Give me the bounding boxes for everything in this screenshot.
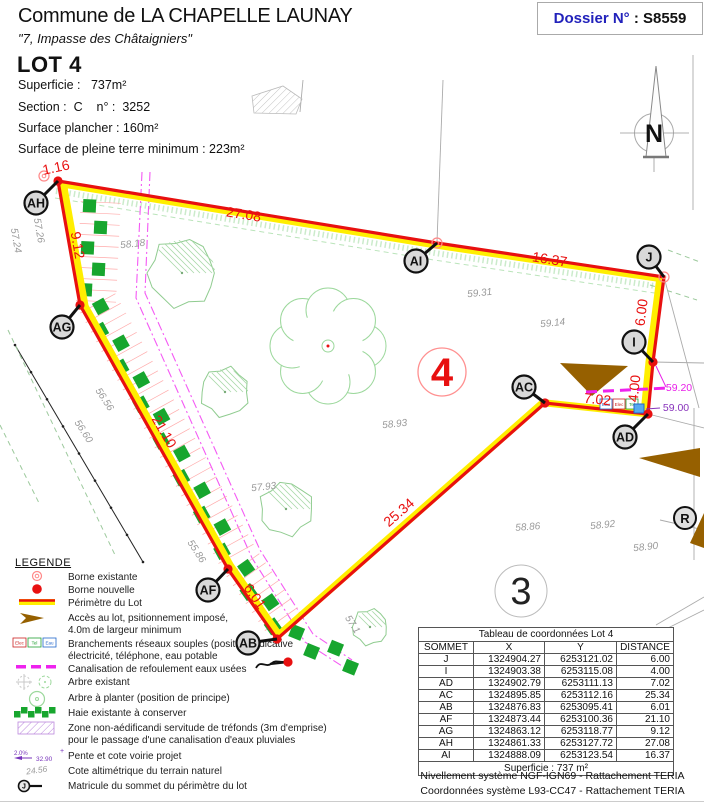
borne-nouvelle (75, 300, 84, 309)
table-row: AF1324873.446253100.3621.10 (419, 714, 674, 726)
hedge-square (81, 241, 95, 255)
hatched-parcel (252, 86, 302, 114)
table-cell: 21.10 (617, 714, 674, 726)
table-cell: AI (419, 750, 474, 762)
legend-title: LEGENDE (15, 557, 71, 569)
table-cell: 6253111.13 (545, 678, 617, 690)
borne-nouvelle (223, 564, 232, 573)
borne-existante (659, 272, 669, 282)
green-dashed-lines (0, 250, 700, 555)
elevation-label: 58.92 (590, 519, 616, 533)
table-row: AC1324895.856253112.1625.34 (419, 690, 674, 702)
tree-outline (201, 366, 247, 417)
table-cell: 6253123.54 (545, 750, 617, 762)
table-cell: 1324876.83 (474, 702, 545, 714)
legend-item-text: Cote altimétrique du terrain naturel (68, 766, 222, 778)
borne-existante (39, 171, 49, 181)
legend-item-text: Canalisation de refoulement eaux usées (68, 664, 246, 676)
svg-text:AC: AC (515, 380, 533, 394)
elevation-label: 57.1 (342, 613, 362, 635)
hedge-square (92, 298, 110, 316)
elevation-label: 58.86 (515, 521, 541, 534)
svg-text:32.90: 32.90 (36, 756, 53, 763)
vertex-label-AI (405, 250, 428, 273)
vertex-label-I (623, 331, 646, 354)
lot-number: 4 (431, 351, 454, 395)
svg-text:Tel: Tel (629, 402, 635, 407)
background-parcel-lines (252, 55, 704, 628)
utility-connections: EauElecTel (600, 399, 644, 413)
north-arrow: N (620, 66, 689, 172)
lot-info-line: Surface plancher : 160m² (18, 121, 158, 135)
hedge-square (92, 263, 106, 277)
acces-icon (12, 610, 62, 628)
existing-hedge-band (55, 191, 662, 294)
table-cell: AG (419, 726, 474, 738)
lot-perimeter (58, 181, 664, 639)
table-header: X (474, 642, 545, 654)
elevation-label: 57.26 (31, 217, 46, 244)
elevation-label: 56.60 (72, 418, 95, 445)
table-cell: 16.37 (617, 750, 674, 762)
lot-info-line: Section : C n° : 3252 (18, 100, 150, 114)
svg-text:I: I (632, 335, 635, 349)
svg-text:Eau: Eau (602, 402, 611, 407)
perimeter-yellow-band (63, 184, 659, 635)
borne-nouvelle (540, 398, 549, 407)
hedge-square (92, 322, 110, 340)
table-cell: AC (419, 690, 474, 702)
hedge-square (193, 481, 211, 499)
lot-info-line: Superficie : 737m² (18, 78, 126, 92)
tree-outline (260, 482, 311, 536)
legend-item-text: Accès au lot, psitionnement imposé,4.0m … (68, 613, 228, 636)
table-cell: 1324861.33 (474, 738, 545, 750)
table-cell: 9.12 (617, 726, 674, 738)
north-arrow-needle (646, 66, 666, 157)
hedge-square (327, 640, 344, 657)
svg-text:+: + (60, 748, 64, 755)
table-cell: 1324902.79 (474, 678, 545, 690)
table-cell: 25.34 (617, 690, 674, 702)
hedge-square (261, 593, 279, 611)
vertex-label-AG (51, 316, 74, 339)
table-row: AG1324863.126253118.779.12 (419, 726, 674, 738)
svg-text:24.56: 24.56 (24, 764, 48, 777)
hedge-square (132, 371, 150, 389)
sewage-pipe: 59.2059.00 (586, 366, 692, 414)
elevation-label: 58.90 (633, 541, 659, 555)
sketch-mark (256, 661, 288, 668)
hedge-square (303, 643, 320, 660)
elevation-label: 59.31 (467, 287, 493, 301)
table-cell: 6253100.36 (545, 714, 617, 726)
dossier-number: : S8559 (630, 10, 687, 27)
table-cell: 6253118.77 (545, 726, 617, 738)
table-cell: 1324904.27 (474, 654, 545, 666)
hedge-square (173, 445, 191, 463)
hedge-square (193, 506, 211, 524)
hedge-square (153, 408, 171, 426)
table-cell: 1324888.09 (474, 750, 545, 762)
distance-labels: 1.1627.0816.376.004.007.0225.346.0121.10… (41, 156, 651, 612)
svg-text:J: J (646, 250, 653, 264)
legend-item-text: Arbre à planter (position de principe) (68, 693, 230, 705)
table-row: J1324904.276253121.026.00 (419, 654, 674, 666)
page-title: Commune de LA CHAPELLE LAUNAY (18, 5, 352, 28)
legend-item-text: Haie existante à conserver (68, 708, 186, 720)
tree-outline (352, 609, 386, 646)
table-row: AH1324861.336253127.7227.08 (419, 738, 674, 750)
table-cell: 1324863.12 (474, 726, 545, 738)
elevation-label: 59.14 (540, 317, 566, 331)
hedge-square (79, 283, 93, 297)
distance-label: 21.10 (149, 412, 180, 451)
svg-text:Eau: Eau (45, 641, 54, 646)
perimeter-red-line (58, 181, 664, 639)
svg-text:Tel: Tel (32, 641, 38, 646)
table-header: SOMMET (419, 642, 474, 654)
page-bottom-rule (0, 801, 704, 802)
dossier-box: Dossier N° : S8559 (537, 2, 703, 35)
hedge-square (342, 659, 359, 676)
utility-box-elec (613, 399, 625, 409)
hedge-square (237, 559, 255, 577)
distance-label: 1.16 (41, 156, 71, 177)
vertex-label-AC (513, 376, 536, 399)
table-cell: 7.02 (617, 678, 674, 690)
elevation-label: 55.86 (185, 538, 208, 565)
table-cell: 6253121.02 (545, 654, 617, 666)
tree-to-plant (270, 288, 386, 404)
svg-text:J: J (22, 784, 26, 791)
distance-label: 6.00 (631, 298, 650, 327)
hedge-square (214, 518, 232, 536)
utility-box-eau (600, 399, 612, 409)
svg-text:2.0%: 2.0% (14, 751, 28, 757)
svg-text:AH: AH (27, 196, 45, 210)
hedge-square (112, 334, 130, 352)
distance-label: 9.12 (68, 230, 89, 260)
vertex-label-AF (197, 579, 220, 602)
elevation-label: 56.56 (93, 386, 116, 413)
elevation-label: 58.18 (120, 238, 146, 252)
distance-label: 4.00 (625, 374, 644, 403)
table-cell: AF (419, 714, 474, 726)
svg-text:AG: AG (53, 320, 72, 334)
borne-nouvelle (648, 357, 657, 366)
table-cell: 6253112.16 (545, 690, 617, 702)
vertex-label-AD (614, 426, 637, 449)
legend-item-text: Périmètre du Lot (68, 598, 142, 610)
pipe-elevation-label: 59.20 (666, 382, 692, 394)
table-cell: I (419, 666, 474, 678)
borne-existante (432, 238, 442, 248)
legend-item-text: Borne existante (68, 572, 138, 584)
hedge-square (132, 395, 150, 413)
table-cell: 6253127.72 (545, 738, 617, 750)
road-label: R (680, 511, 690, 526)
table-row: AB1324876.836253095.416.01 (419, 702, 674, 714)
lot-numbers: 43R (418, 348, 696, 617)
legend-item-text: Zone non-aédificandi servitude de tréfon… (68, 723, 327, 746)
hedge-square (112, 359, 130, 377)
lot-title: LOT 4 (17, 52, 82, 78)
hedge-square (173, 469, 191, 487)
hedge-square (94, 221, 108, 235)
matricule-icon: J (12, 778, 62, 796)
hedge-square (152, 432, 170, 450)
legend-item-text: Branchements réseaux souples (position i… (68, 639, 293, 662)
table-cell: AB (419, 702, 474, 714)
distance-label: 7.02 (583, 390, 612, 409)
svg-text:Elec: Elec (15, 641, 25, 646)
pipe-elevation-label: 59.00 (663, 402, 689, 414)
table-cell: 27.08 (617, 738, 674, 750)
svg-text:Elec: Elec (615, 402, 625, 407)
utility-box-tel (626, 399, 638, 409)
elevation-label: 57.24 (8, 227, 23, 254)
servitude-lines (136, 172, 352, 668)
georeference-note: Nivellement système NGF-IGN69 - Rattache… (405, 769, 700, 784)
table-cell: 6253115.08 (545, 666, 617, 678)
tree-outline (147, 239, 214, 308)
table-cell: AD (419, 678, 474, 690)
vertex-label-J (638, 246, 661, 269)
distance-label: 25.34 (380, 495, 417, 530)
table-cell: 1324895.85 (474, 690, 545, 702)
water-connection-point (634, 404, 644, 413)
table-header: DISTANCE (617, 642, 674, 654)
fence-line (14, 344, 145, 564)
access-arrow (560, 363, 628, 396)
hedge-square (239, 583, 257, 601)
access-arrows (560, 363, 704, 548)
table-cell: 4.00 (617, 666, 674, 678)
distance-label: 6.01 (241, 580, 270, 612)
access-arrow (639, 448, 700, 477)
svg-text:AI: AI (410, 254, 423, 268)
table-cell: 6.01 (617, 702, 674, 714)
table-cell: J (419, 654, 474, 666)
table-row: AD1324902.796253111.137.02 (419, 678, 674, 690)
borne-nouvelle (643, 409, 652, 418)
coordinate-table: Tableau de coordonnées Lot 4SOMMETXYDIST… (418, 627, 674, 776)
svg-text:AF: AF (200, 583, 217, 597)
footnotes: Nivellement système NGF-IGN69 - Rattache… (405, 769, 700, 799)
table-header: Y (545, 642, 617, 654)
hedge-square (83, 199, 97, 213)
adjacent-lot-number: 3 (510, 571, 531, 613)
legend-item-text: Matricule du sommet du périmètre du lot (68, 781, 247, 793)
lot-info-line: Surface de pleine terre minimum : 223m² (18, 142, 244, 156)
branchements-icon: ElecTelEau (12, 636, 62, 654)
distance-label: 27.08 (225, 203, 262, 224)
table-cell: 1324873.44 (474, 714, 545, 726)
coordinate-table-grid: Tableau de coordonnées Lot 4SOMMETXYDIST… (418, 627, 674, 776)
zone-icon (12, 720, 62, 738)
legend-item-text: Pente et cote voirie projet (68, 751, 181, 763)
address-subtitle: "7, Impasse des Châtaigniers" (18, 31, 192, 46)
hedge-square (264, 617, 282, 635)
existing-trees (146, 237, 406, 646)
north-label: N (645, 120, 663, 148)
distance-label: 16.37 (531, 248, 568, 269)
table-row: AI1324888.096253123.5416.37 (419, 750, 674, 762)
table-cell: 6.00 (617, 654, 674, 666)
access-arrow (690, 513, 704, 548)
table-cell: 1324903.38 (474, 666, 545, 678)
georeference-note: Coordonnées système L93-CC47 - Rattachem… (405, 784, 700, 799)
hedge-square (213, 542, 231, 560)
dossier-label: Dossier N° (554, 10, 630, 27)
table-row: I1324903.386253115.084.00 (419, 666, 674, 678)
elevation-label: 57.93 (251, 481, 277, 495)
borne-nouvelle (53, 176, 62, 185)
svg-text:AD: AD (616, 430, 634, 444)
table-cell: AH (419, 738, 474, 750)
vertex-label-AH (25, 192, 48, 215)
table-cell: 6253095.41 (545, 702, 617, 714)
legend-item-text: Borne nouvelle (68, 585, 135, 597)
table-title: Tableau de coordonnées Lot 4 (419, 628, 674, 642)
legend-item-text: Arbre existant (68, 677, 130, 689)
elevation-label: 58.93 (382, 418, 408, 432)
